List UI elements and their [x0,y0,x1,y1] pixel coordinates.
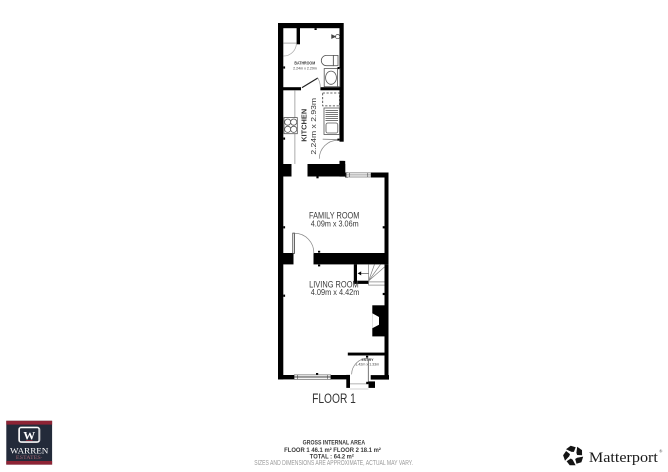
svg-text:Matterport: Matterport [589,450,659,466]
svg-text:1.42m x 1.33m: 1.42m x 1.33m [355,363,379,367]
svg-text:®: ® [659,449,663,454]
svg-text:2.24m x 2.93m: 2.24m x 2.93m [309,98,318,155]
svg-text:SIZES AND DIMENSIONS ARE APPRO: SIZES AND DIMENSIONS ARE APPROXIMATE, AC… [254,460,413,467]
svg-text:4.09m x 4.42m: 4.09m x 4.42m [311,287,360,297]
svg-text:4.09m x 3.06m: 4.09m x 3.06m [311,219,359,229]
svg-text:GROSS INTERNAL AREA: GROSS INTERNAL AREA [303,439,366,446]
svg-text:2.24m x 2.29m: 2.24m x 2.29m [293,65,317,70]
svg-text:KITCHEN: KITCHEN [299,109,308,142]
svg-text:ESTATES·: ESTATES· [16,455,43,461]
svg-text:FLOOR 1: FLOOR 1 [312,391,356,406]
